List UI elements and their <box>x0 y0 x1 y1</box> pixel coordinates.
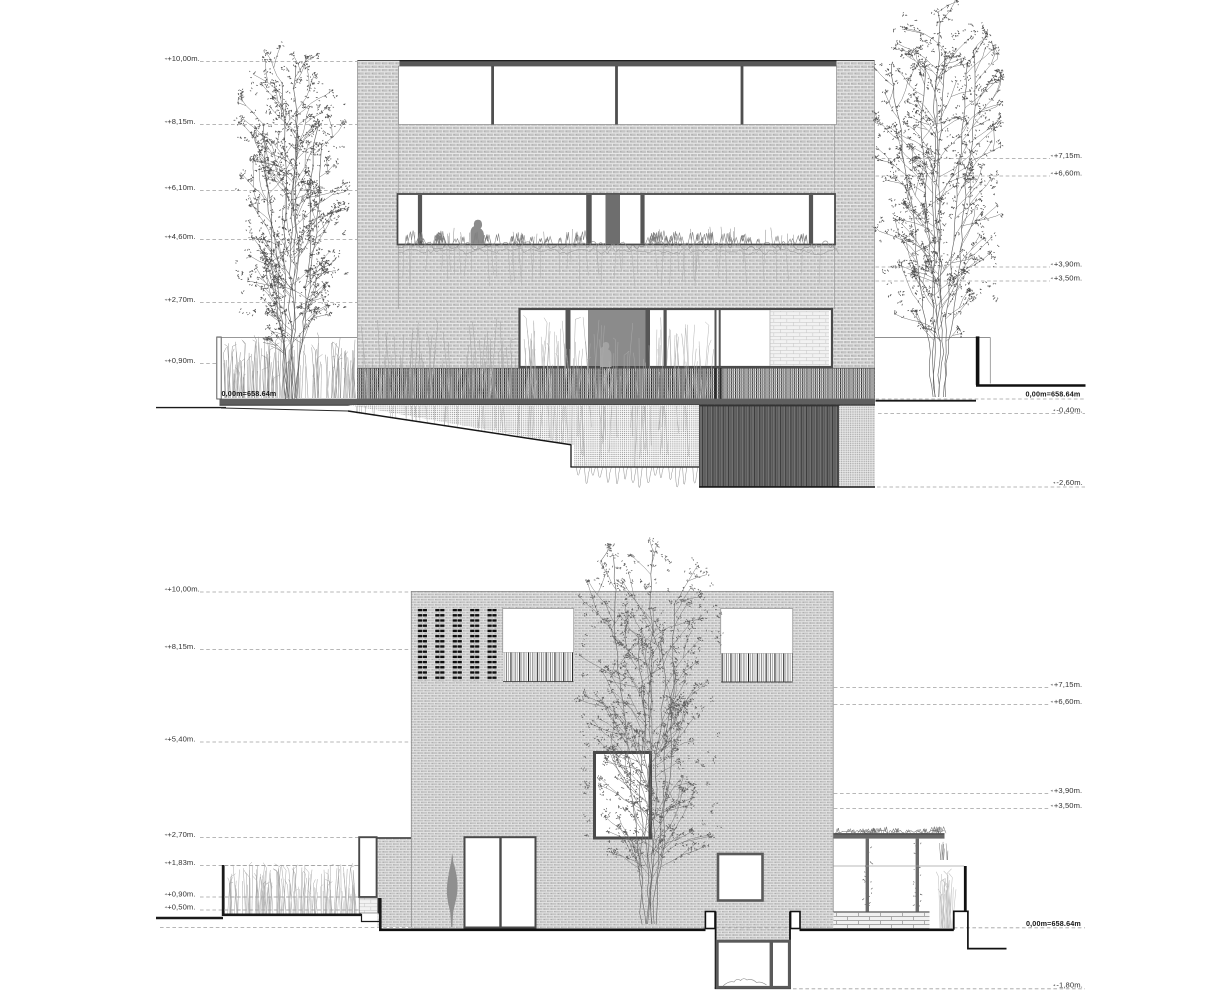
svg-text:+3,90m.: +3,90m. <box>1054 260 1082 269</box>
svg-text:0,00m=658.64m: 0,00m=658.64m <box>1026 390 1081 399</box>
svg-text:+1,83m.: +1,83m. <box>167 858 195 867</box>
svg-text:-2,60m.: -2,60m. <box>1056 478 1082 487</box>
svg-text:+3,50m.: +3,50m. <box>1054 274 1082 283</box>
svg-text:-0,40m.: -0,40m. <box>1056 406 1082 415</box>
svg-text:+7,15m.: +7,15m. <box>1054 151 1082 160</box>
svg-text:+6,60m.: +6,60m. <box>1054 697 1082 706</box>
svg-text:-1,80m.: -1,80m. <box>1056 981 1082 990</box>
svg-text:+0,90m.: +0,90m. <box>167 890 195 899</box>
svg-text:+0,50m.: +0,50m. <box>167 903 195 912</box>
svg-text:+8,15m.: +8,15m. <box>167 642 195 651</box>
svg-text:+10,00m.: +10,00m. <box>167 585 200 594</box>
svg-text:+5,40m.: +5,40m. <box>167 735 195 744</box>
svg-text:+2,70m.: +2,70m. <box>167 830 195 839</box>
svg-text:+3,90m.: +3,90m. <box>1054 786 1082 795</box>
svg-text:+2,70m.: +2,70m. <box>167 295 195 304</box>
svg-text:+4,60m.: +4,60m. <box>167 232 195 241</box>
svg-text:0,00m=658.64m: 0,00m=658.64m <box>222 389 277 398</box>
svg-text:0,00m=658.64m: 0,00m=658.64m <box>1026 919 1081 928</box>
svg-text:+0,90m.: +0,90m. <box>167 356 195 365</box>
svg-text:+6,10m.: +6,10m. <box>167 183 195 192</box>
svg-text:+8,15m.: +8,15m. <box>167 117 195 126</box>
svg-text:+3,50m.: +3,50m. <box>1054 801 1082 810</box>
svg-text:+6,60m.: +6,60m. <box>1054 169 1082 178</box>
svg-text:+10,00m.: +10,00m. <box>167 54 200 63</box>
svg-text:+7,15m.: +7,15m. <box>1054 680 1082 689</box>
